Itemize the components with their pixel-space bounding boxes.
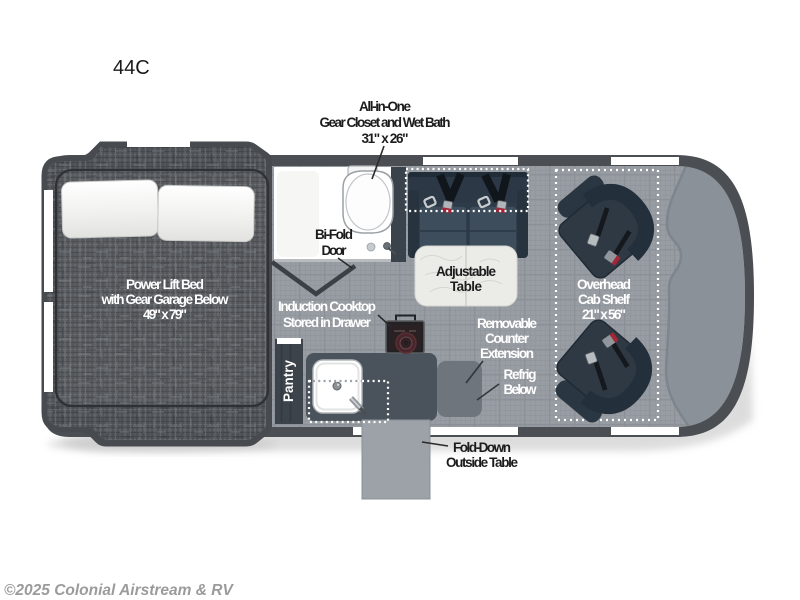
svg-text:Refrig: Refrig (504, 367, 537, 382)
svg-text:21" x 56": 21" x 56" (582, 307, 626, 322)
svg-text:Table: Table (450, 279, 482, 294)
svg-text:Stored in Drawer: Stored in Drawer (283, 315, 372, 330)
svg-text:Outside Table: Outside Table (446, 455, 518, 470)
svg-text:49" x 79": 49" x 79" (143, 307, 187, 322)
svg-text:Extension: Extension (480, 346, 534, 361)
svg-text:Below: Below (504, 382, 537, 397)
svg-text:Door: Door (322, 243, 348, 258)
svg-text:with Gear Garage Below: with Gear Garage Below (101, 292, 229, 307)
svg-text:31" x 26": 31" x 26" (362, 131, 409, 146)
svg-text:Cab Shelf: Cab Shelf (578, 292, 631, 307)
svg-text:44C: 44C (113, 57, 150, 79)
svg-text:Adjustable: Adjustable (436, 264, 496, 279)
svg-text:Fold-Down: Fold-Down (453, 440, 511, 455)
svg-text:Overhead: Overhead (577, 277, 631, 292)
svg-text:All-in-One: All-in-One (359, 99, 411, 114)
svg-text:©2025 Colonial Airstream & RV: ©2025 Colonial Airstream & RV (4, 582, 234, 599)
svg-text:Counter: Counter (485, 331, 530, 346)
svg-text:Pantry: Pantry (281, 360, 296, 403)
svg-text:Power Lift Bed: Power Lift Bed (126, 277, 204, 292)
svg-text:Gear Closet and Wet Bath: Gear Closet and Wet Bath (320, 115, 451, 130)
svg-text:Bi-Fold: Bi-Fold (315, 227, 353, 242)
svg-text:Removable: Removable (477, 316, 537, 331)
svg-text:Induction Cooktop: Induction Cooktop (278, 299, 376, 314)
